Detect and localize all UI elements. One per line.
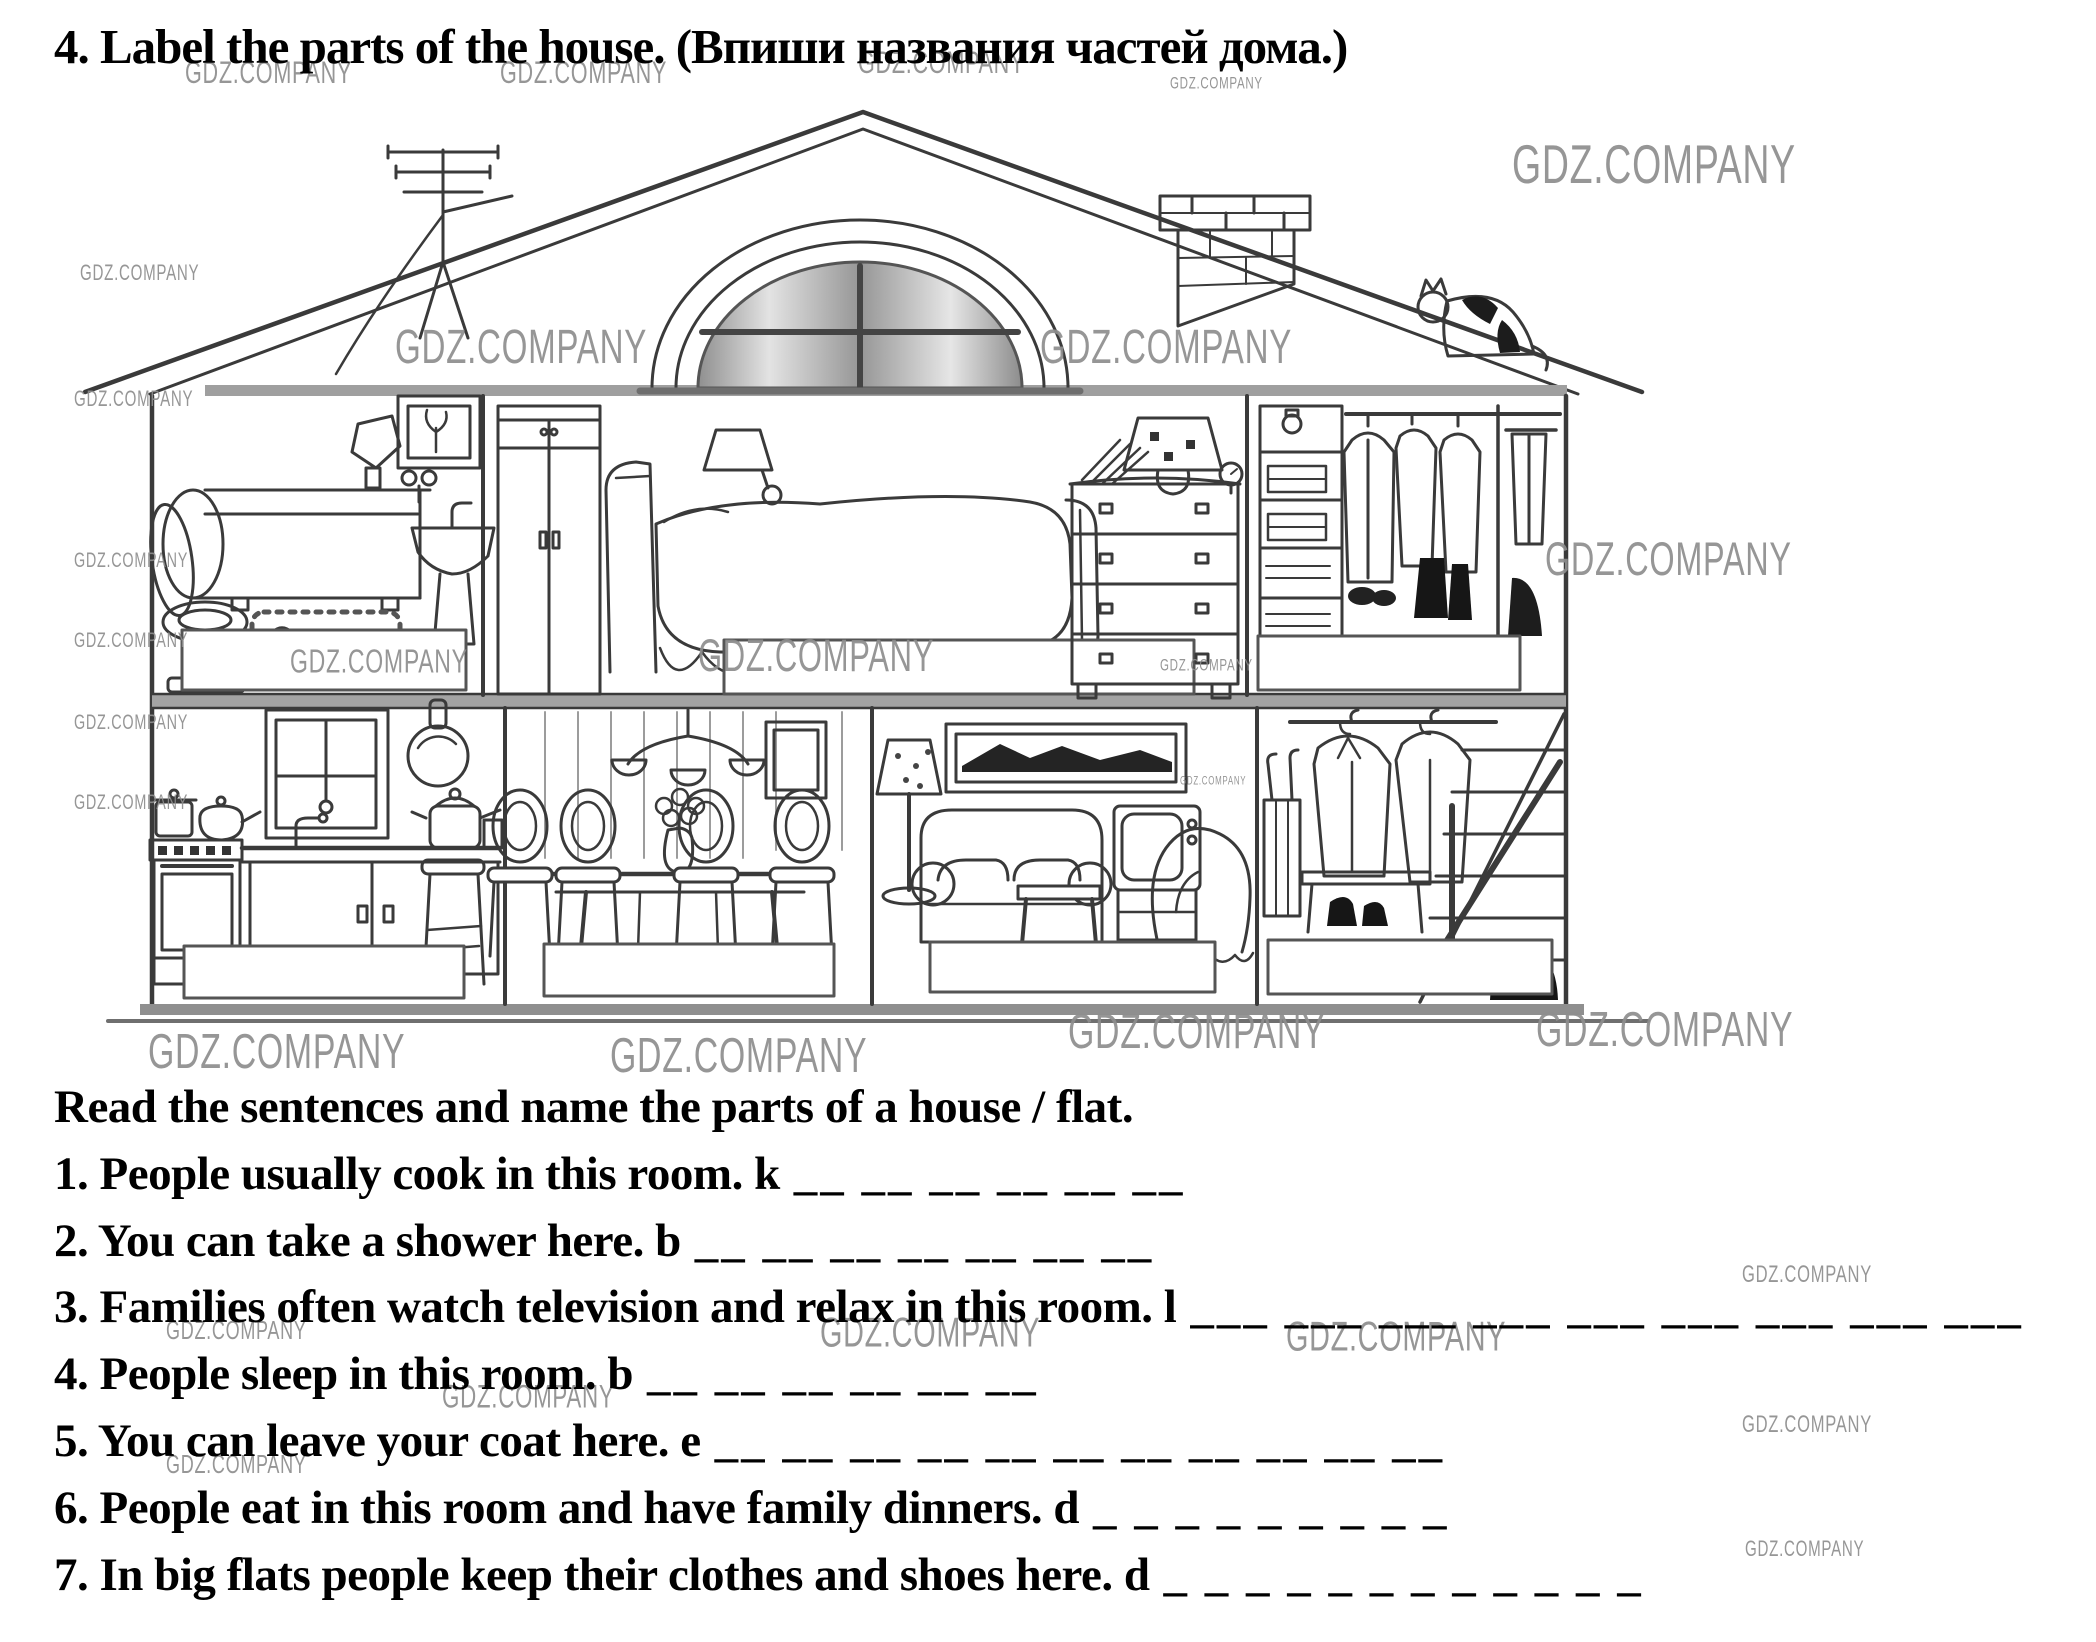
sentence-list: 1. People usually cook in this room. k__…: [54, 1143, 2024, 1611]
living-room-illustration: [877, 724, 1253, 992]
answer-blank[interactable]: __ __ __ __ __ __: [794, 1148, 1186, 1200]
sentence-text: 5. You can leave your coat here. e: [54, 1415, 701, 1467]
answer-blank[interactable]: __ __ __ __ __ __ __ __ __ __ __: [715, 1415, 1446, 1467]
dining-room-illustration: [488, 710, 842, 996]
sentence-text: 7. In big flats people keep their clothe…: [54, 1549, 1150, 1601]
watermark: GDZ.COMPANY: [1512, 138, 1796, 193]
room-label-box[interactable]: [1268, 940, 1552, 994]
watermark: GDZ.COMPANY: [74, 550, 188, 571]
watermark: GDZ.COMPANY: [74, 388, 193, 410]
watermark: GDZ.COMPANY: [1545, 535, 1792, 582]
exercise-sentence: 4. People sleep in this room. b__ __ __ …: [54, 1343, 2024, 1410]
exercise-sentence: 3. Families often watch television and r…: [54, 1276, 2024, 1343]
answer-blank[interactable]: __ __ __ __ __ __ __: [695, 1215, 1155, 1267]
watermark: GDZ.COMPANY: [74, 630, 188, 651]
hall-illustration: [1264, 710, 1564, 1002]
watermark: GDZ.COMPANY: [74, 792, 188, 813]
cat-on-roof: [1418, 279, 1547, 370]
closet-illustration: [1258, 406, 1560, 690]
exercise-sentence: 6. People eat in this room and have fami…: [54, 1477, 2024, 1544]
sentence-text: 1. People usually cook in this room. k: [54, 1148, 780, 1200]
exercise-title: 4. Label the parts of the house. (Впиши …: [54, 18, 1347, 75]
sentence-text: 4. People sleep in this room. b: [54, 1348, 633, 1400]
answer-blank[interactable]: _ _ _ _ _ _ _ _ _ _ _ _: [1164, 1549, 1644, 1601]
room-label-box[interactable]: [544, 944, 834, 996]
watermark: GDZ.COMPANY: [74, 712, 188, 733]
watermark: GDZ.COMPANY: [80, 262, 199, 284]
exercise-sentence: 5. You can leave your coat here. e__ __ …: [54, 1410, 2024, 1477]
sentence-text: 6. People eat in this room and have fami…: [54, 1482, 1079, 1534]
sentence-text: 3. Families often watch television and r…: [54, 1281, 1176, 1333]
watermark: GDZ.COMPANY: [1170, 76, 1263, 93]
watermark: GDZ.COMPANY: [698, 634, 934, 679]
watermark: GDZ.COMPANY: [1180, 776, 1246, 788]
room-label-box[interactable]: [1258, 636, 1520, 690]
exercise-text-block: Read the sentences and name the parts of…: [54, 1076, 2024, 1610]
watermark: GDZ.COMPANY: [1068, 1006, 1325, 1055]
watermark: GDZ.COMPANY: [290, 644, 468, 678]
answer-blank[interactable]: __ __ __ __ __ __: [647, 1348, 1039, 1400]
answer-blank[interactable]: ___ ___ ___ ___ ___ ___ ___ ___ ___: [1190, 1281, 2024, 1333]
exercise-instruction: Read the sentences and name the parts of…: [54, 1076, 2024, 1143]
sentence-text: 2. You can take a shower here. b: [54, 1215, 681, 1267]
worksheet-page: { "page": { "title": "4. Label the parts…: [0, 0, 2096, 1642]
room-label-box[interactable]: [184, 946, 464, 998]
exercise-sentence: 2. You can take a shower here. b__ __ __…: [54, 1210, 2024, 1277]
room-label-box[interactable]: [930, 942, 1215, 992]
answer-blank[interactable]: _ _ _ _ _ _ _ _ _: [1093, 1482, 1450, 1534]
exercise-sentence: 7. In big flats people keep their clothe…: [54, 1544, 2024, 1611]
watermark: GDZ.COMPANY: [1160, 658, 1253, 675]
watermark: GDZ.COMPANY: [148, 1026, 405, 1075]
chimney: [1160, 196, 1310, 326]
attic-window: [640, 220, 1080, 391]
watermark: GDZ.COMPANY: [1536, 1004, 1793, 1053]
watermark: GDZ.COMPANY: [610, 1030, 867, 1079]
exercise-sentence: 1. People usually cook in this room. k__…: [54, 1143, 2024, 1210]
watermark: GDZ.COMPANY: [395, 322, 647, 370]
watermark: GDZ.COMPANY: [1040, 322, 1292, 370]
kitchen-illustration: [150, 700, 502, 998]
